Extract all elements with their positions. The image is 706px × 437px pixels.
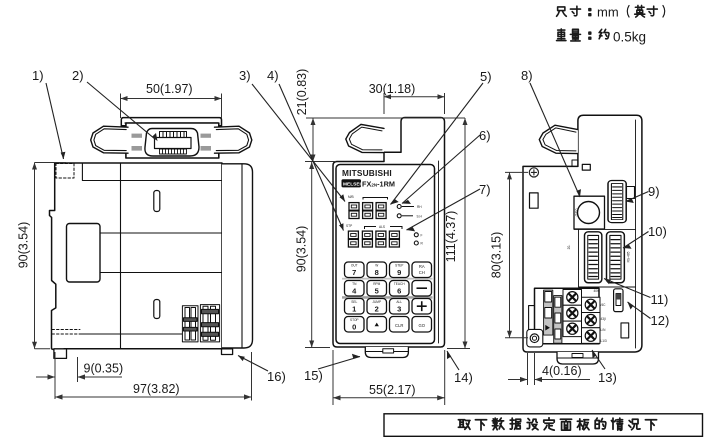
svg-text:5): 5) [480, 69, 492, 84]
svg-text:OUT: OUT [351, 264, 358, 268]
svg-text:16): 16) [267, 369, 286, 384]
svg-text:8: 8 [375, 268, 379, 277]
svg-text:ALL: ALL [396, 300, 402, 304]
svg-text:STP: STP [346, 224, 352, 228]
svg-text:90(3.54): 90(3.54) [17, 222, 31, 269]
svg-text:RPM: RPM [373, 282, 380, 286]
svg-text:L1/3: L1/3 [601, 339, 607, 343]
svg-text:10): 10) [648, 224, 667, 239]
svg-text:30(1.18): 30(1.18) [369, 82, 416, 96]
svg-text:80(3.15): 80(3.15) [490, 232, 504, 279]
svg-text:RS-485: RS-485 [627, 251, 631, 262]
svg-text:L/N: L/N [601, 328, 607, 332]
svg-text:SEL: SEL [351, 300, 357, 304]
svg-text:STEP: STEP [395, 264, 403, 268]
svg-text:3: 3 [397, 305, 401, 314]
svg-text:GO: GO [418, 323, 425, 328]
svg-text:M/B: M/B [348, 195, 354, 199]
svg-text:40h: 40h [594, 289, 600, 293]
svg-text:21(0.83): 21(0.83) [295, 69, 309, 116]
svg-text:0.5kg: 0.5kg [613, 30, 646, 45]
svg-text:JUMP: JUMP [372, 300, 381, 304]
svg-text:0: 0 [352, 323, 356, 332]
svg-text:55(2.17): 55(2.17) [369, 383, 416, 397]
svg-text:RA: RA [419, 264, 425, 269]
svg-text:RH: RH [417, 205, 422, 209]
svg-text:TN: TN [352, 282, 357, 286]
svg-text:STOP: STOP [350, 318, 359, 322]
svg-text:7): 7) [479, 182, 491, 197]
svg-text:1): 1) [32, 68, 44, 83]
svg-text:2: 2 [375, 305, 379, 314]
svg-text:50(1.97): 50(1.97) [146, 82, 193, 96]
svg-text:11): 11) [651, 292, 669, 307]
svg-text:9: 9 [397, 268, 401, 277]
svg-text:13): 13) [598, 370, 617, 385]
svg-text:12): 12) [651, 313, 670, 328]
svg-text:43(I: 43(I [601, 317, 607, 321]
svg-text:CLR: CLR [395, 323, 403, 328]
svg-text:/4C: /4C [601, 303, 607, 307]
svg-text:2): 2) [72, 68, 84, 83]
svg-text:F: F [421, 233, 423, 237]
svg-text:9): 9) [648, 184, 660, 199]
svg-text:5: 5 [375, 287, 379, 296]
svg-text:TEACH: TEACH [394, 282, 406, 286]
svg-text:4(0.16): 4(0.16) [542, 364, 582, 378]
svg-text:9(0.35): 9(0.35) [84, 362, 124, 376]
svg-text:6: 6 [397, 287, 401, 296]
svg-text:MITSUBISHI: MITSUBISHI [342, 168, 392, 178]
svg-text:1: 1 [352, 305, 356, 314]
svg-text:mm: mm [597, 5, 619, 20]
svg-text:FX2N-1RM: FX2N-1RM [362, 180, 395, 189]
svg-text:111(4.37): 111(4.37) [444, 211, 458, 263]
svg-text:W: W [375, 264, 378, 268]
svg-text:4): 4) [267, 68, 279, 83]
svg-text:14): 14) [454, 370, 473, 385]
svg-text:MELSEC: MELSEC [343, 181, 364, 187]
svg-text:3): 3) [239, 68, 251, 83]
svg-text:8): 8) [521, 68, 533, 83]
svg-text:(24V): (24V) [575, 209, 579, 217]
svg-text:90(3.54): 90(3.54) [294, 226, 308, 273]
svg-text:7: 7 [352, 268, 356, 277]
svg-text:20-: 20- [567, 245, 571, 250]
svg-text:ALS: ALS [379, 225, 385, 229]
svg-text:6): 6) [479, 128, 491, 143]
svg-text:15): 15) [304, 368, 323, 383]
svg-text:S.H: S.H [417, 214, 423, 218]
svg-text:CH: CH [419, 270, 425, 275]
svg-text:97(3.82): 97(3.82) [133, 382, 180, 396]
